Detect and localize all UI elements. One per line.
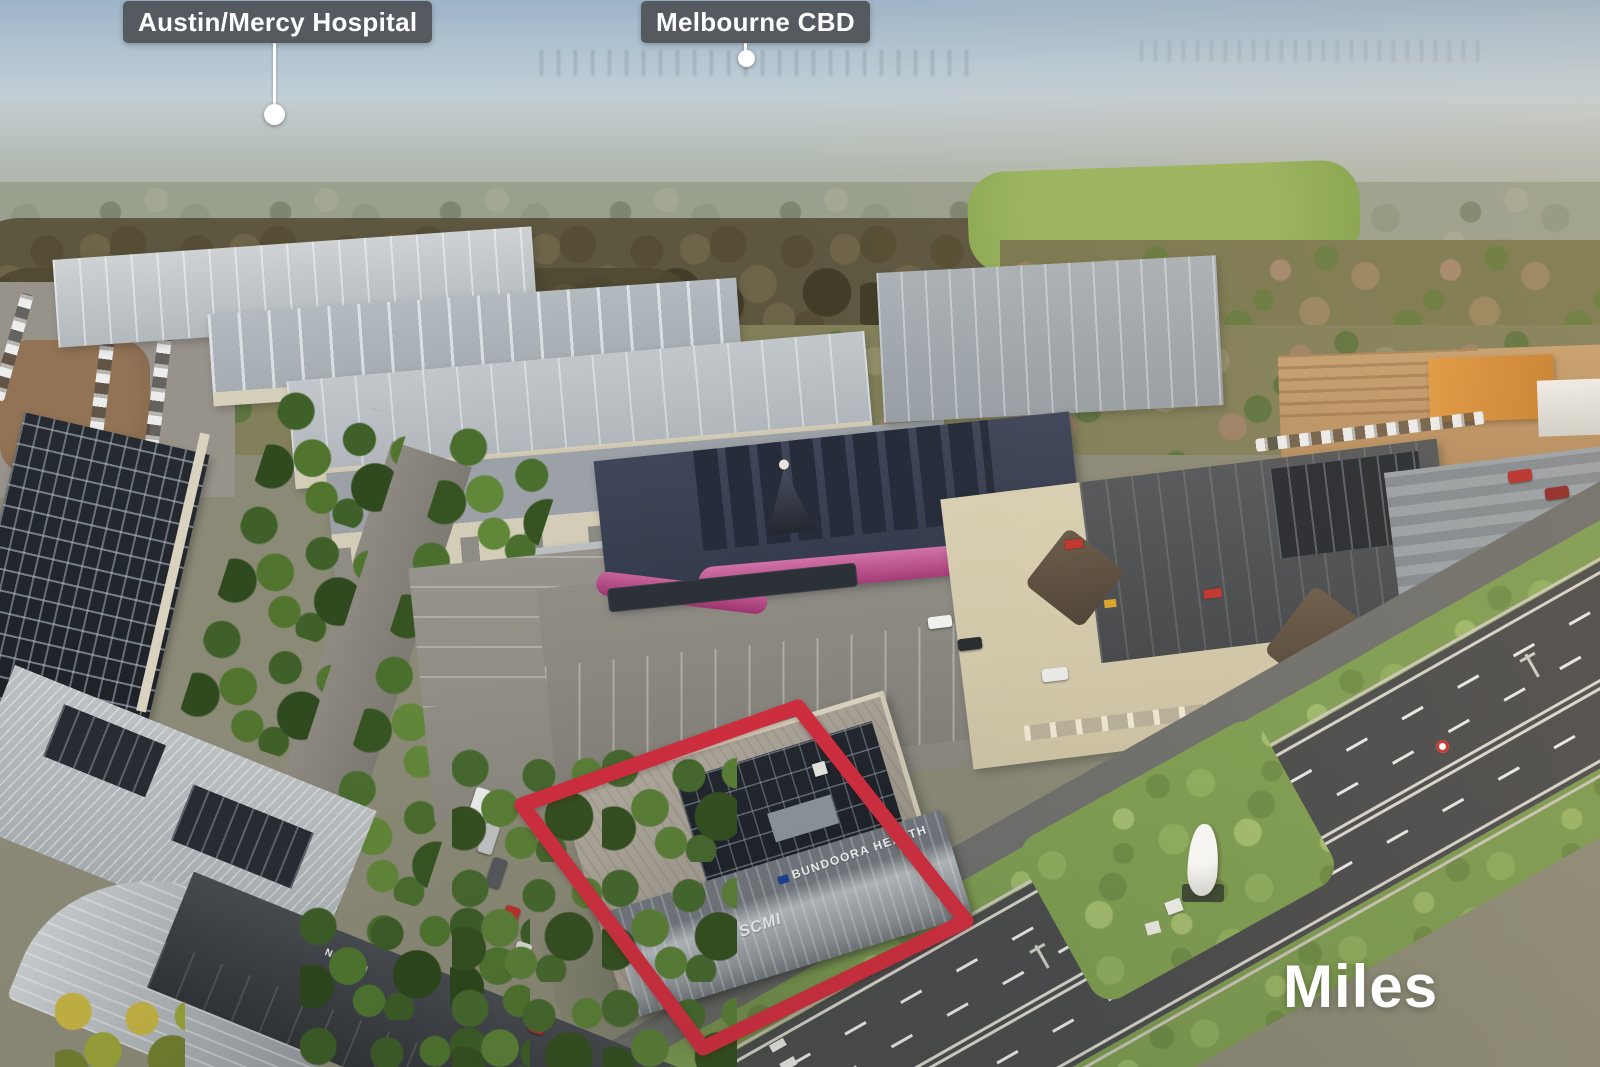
yellow-tree [55, 985, 185, 1067]
orange-shed [1428, 354, 1555, 422]
white-canopy [1537, 378, 1600, 436]
roof-walkway [767, 794, 839, 842]
tenant-sign: SCMI [737, 911, 784, 942]
agency-watermark: Miles [1283, 952, 1438, 1021]
map-pin-label-hospital: Austin/Mercy Hospital [123, 1, 432, 43]
map-pin-dot [738, 50, 755, 67]
solar-patch [43, 704, 166, 797]
cone-tower [760, 465, 815, 536]
map-pin-dot [264, 104, 285, 125]
site-boundary-trees [452, 742, 737, 1067]
map-pin-label-text: Austin/Mercy Hospital [138, 7, 417, 38]
distant-city-skyline [540, 50, 980, 76]
yellow-shop-sign [1104, 599, 1117, 608]
map-pin-label-cbd: Melbourne CBD [641, 1, 870, 43]
health-logo-icon [777, 874, 790, 885]
road-sign [1436, 740, 1449, 753]
aerial-photo: Northern BUNDOORA HEALTH SCMI Austin/Mer… [0, 0, 1600, 1067]
map-pin-stem [273, 43, 276, 107]
cone-tower-tip [778, 459, 789, 470]
warehouse-right-cluster [876, 255, 1223, 423]
distant-city-skyline-right [1140, 40, 1490, 62]
power-pole [1524, 653, 1539, 677]
map-pin-label-text: Melbourne CBD [656, 7, 855, 38]
